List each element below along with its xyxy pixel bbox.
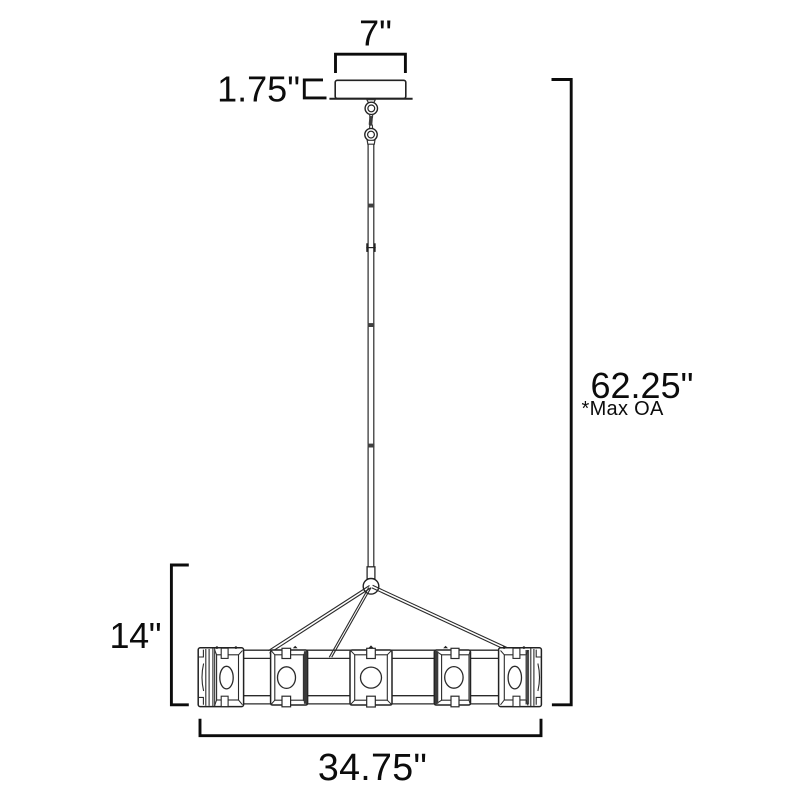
svg-text:*Max OA: *Max OA — [582, 398, 664, 420]
svg-text:14": 14" — [110, 615, 162, 656]
svg-text:7": 7" — [359, 12, 392, 53]
svg-text:1.75": 1.75" — [217, 69, 300, 110]
svg-text:34.75": 34.75" — [318, 746, 427, 788]
